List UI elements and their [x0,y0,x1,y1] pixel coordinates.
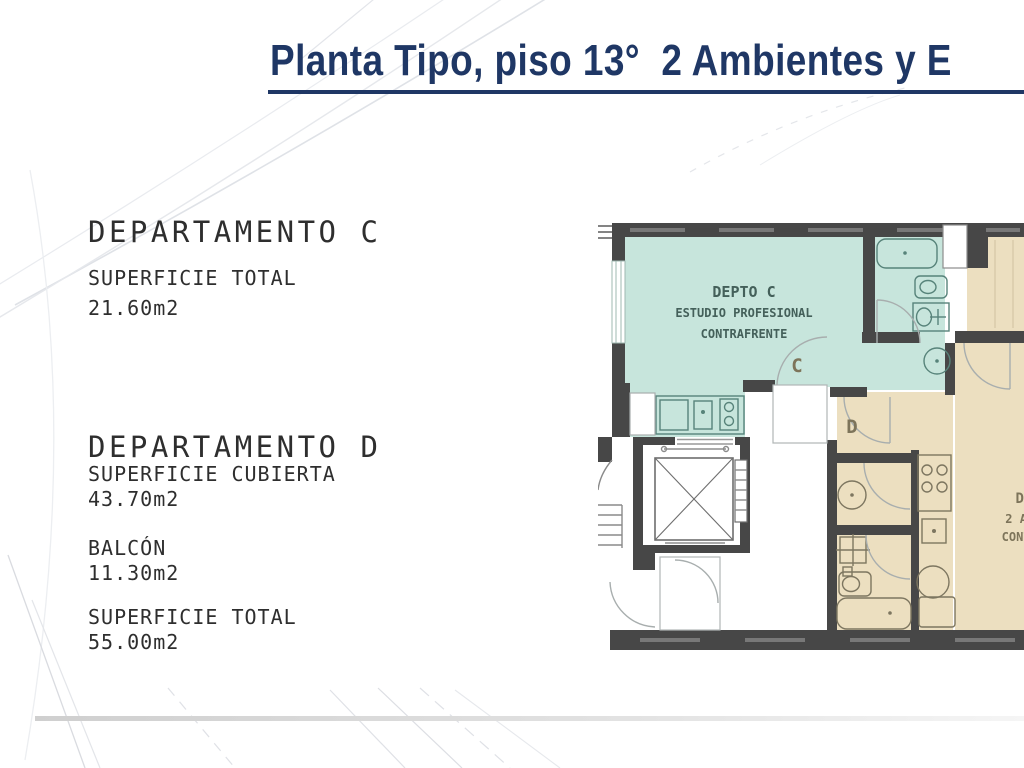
surface-label: BALCÓN [88,536,166,560]
window-gap [943,225,967,268]
surface-label: SUPERFICIE TOTAL [88,266,297,290]
surface-label: SUPERFICIE TOTAL [88,605,297,629]
unit-c-title: DEPARTAMENTO C [88,215,381,249]
surface-value: 43.70m2 [88,487,179,511]
unit-c-opening [863,337,875,390]
floor-plan: C D [598,210,1024,658]
balcony-door-gap [630,393,655,435]
surface-value: 55.00m2 [88,630,179,654]
svg-text:2 AMBIENTES: 2 AMBIENTES [1005,512,1024,526]
title-underline [268,90,1024,94]
window-left [612,261,625,343]
slide-title: Planta Tipo, piso 13° 2 Ambientes y E [270,36,952,86]
surface-value: 11.30m2 [88,561,179,585]
surface-label: SUPERFICIE CUBIERTA [88,462,336,486]
stairs-icon [598,460,622,548]
slide: { "header": { "title": "Planta Tipo, pis… [0,0,1024,768]
elevator [633,437,750,553]
unit-c-bathroom [875,237,945,390]
hall-door [610,557,720,630]
surface-value: 21.60m2 [88,296,179,320]
svg-text:CONTRAFRENTE: CONTRAFRENTE [1002,530,1024,544]
balcony-railing [598,226,612,238]
footer-divider [35,716,1024,721]
svg-text:CONTRAFRENTE: CONTRAFRENTE [701,327,788,341]
unit-d-title: DEPARTAMENTO D [88,430,381,464]
svg-text:DEPTO D: DEPTO D [1015,491,1024,507]
svg-text:ESTUDIO PROFESIONAL: ESTUDIO PROFESIONAL [675,306,812,320]
counterweight [735,460,747,522]
unit-d-room [955,343,1024,630]
door-label-c: C [791,355,802,377]
door-label-d: D [846,416,857,438]
svg-text:DEPTO C: DEPTO C [712,283,775,301]
elevator-car [655,447,733,544]
